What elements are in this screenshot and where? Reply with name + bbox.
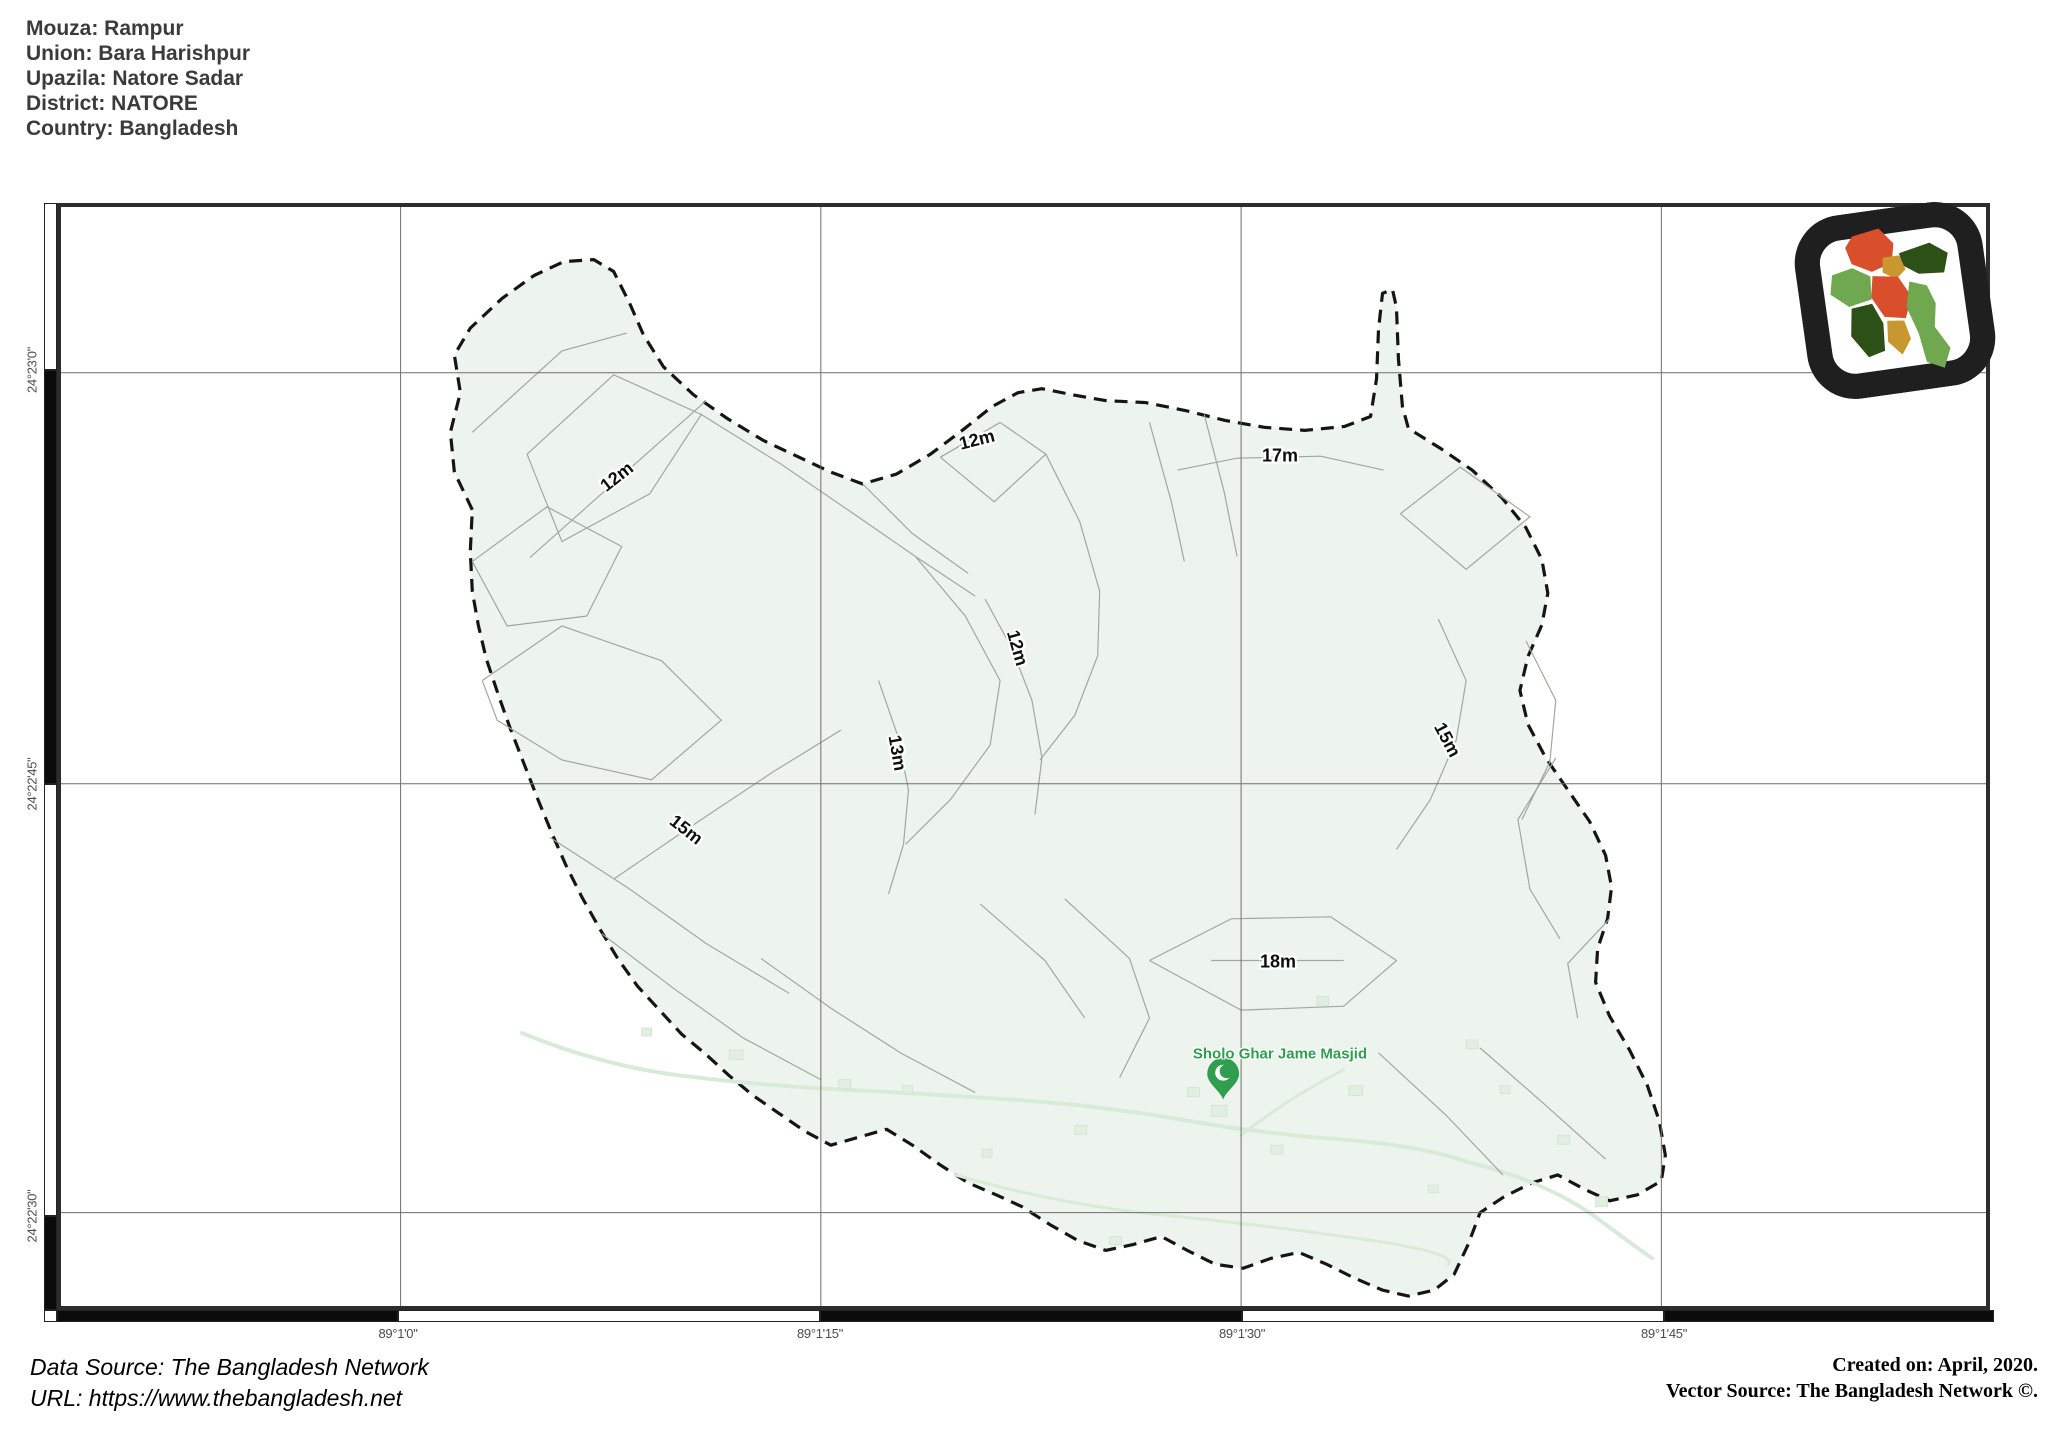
graticule-bar-bottom-1: [57, 1310, 398, 1322]
contour-label: 17m: [1262, 446, 1298, 467]
graticule-bar-bottom-3: [820, 1310, 1242, 1322]
graticule-bar-left-1: [44, 203, 57, 370]
map-document: Mouza: Rampur Union: Bara Harishpur Upaz…: [0, 0, 2048, 1448]
latitude-label: 24°23'0": [25, 347, 40, 393]
graticule-bar-left-2: [44, 370, 57, 784]
title-line-country: Country: Bangladesh: [26, 116, 250, 141]
credits-block: Created on: April, 2020. Vector Source: …: [1666, 1352, 2038, 1404]
longitude-label: 89°1'30": [1219, 1326, 1265, 1341]
latitude-label: 24°22'30": [25, 1190, 40, 1243]
graticule-bar-bottom-4: [1242, 1310, 1664, 1322]
graticule-bar-bottom-5: [1664, 1310, 1994, 1322]
poi-label: Sholo Ghar Jame Masjid: [1193, 1046, 1367, 1063]
created-on-line: Created on: April, 2020.: [1666, 1352, 2038, 1378]
bangladesh-map-logo: [1788, 196, 2002, 406]
graticule-bar-left-3: [44, 784, 57, 1216]
longitude-label: 89°1'0": [378, 1326, 417, 1341]
graticule-corner: [44, 1310, 57, 1322]
latitude-label: 24°22'45": [25, 758, 40, 811]
data-source-url: URL: https://www.thebangladesh.net: [30, 1383, 429, 1414]
longitude-label: 89°1'15": [797, 1326, 843, 1341]
data-source-line: Data Source: The Bangladesh Network: [30, 1352, 429, 1383]
title-line-district: District: NATORE: [26, 91, 250, 116]
title-line-union: Union: Bara Harishpur: [26, 41, 250, 66]
map-frame: [57, 203, 1990, 1310]
map-canvas: [61, 207, 1986, 1306]
title-block: Mouza: Rampur Union: Bara Harishpur Upaz…: [26, 16, 250, 141]
longitude-label: 89°1'45": [1641, 1326, 1687, 1341]
vector-source-line: Vector Source: The Bangladesh Network ©.: [1666, 1378, 2038, 1404]
bangladesh-map-logo-canvas: [1788, 196, 2002, 406]
graticule-bar-left-4: [44, 1216, 57, 1310]
mouza-boundary: [450, 260, 1665, 1296]
title-line-mouza: Mouza: Rampur: [26, 16, 250, 41]
title-line-upazila: Upazila: Natore Sadar: [26, 66, 250, 91]
data-source-block: Data Source: The Bangladesh Network URL:…: [30, 1352, 429, 1414]
graticule-bar-bottom-2: [398, 1310, 820, 1322]
contour-label: 18m: [1260, 952, 1296, 973]
